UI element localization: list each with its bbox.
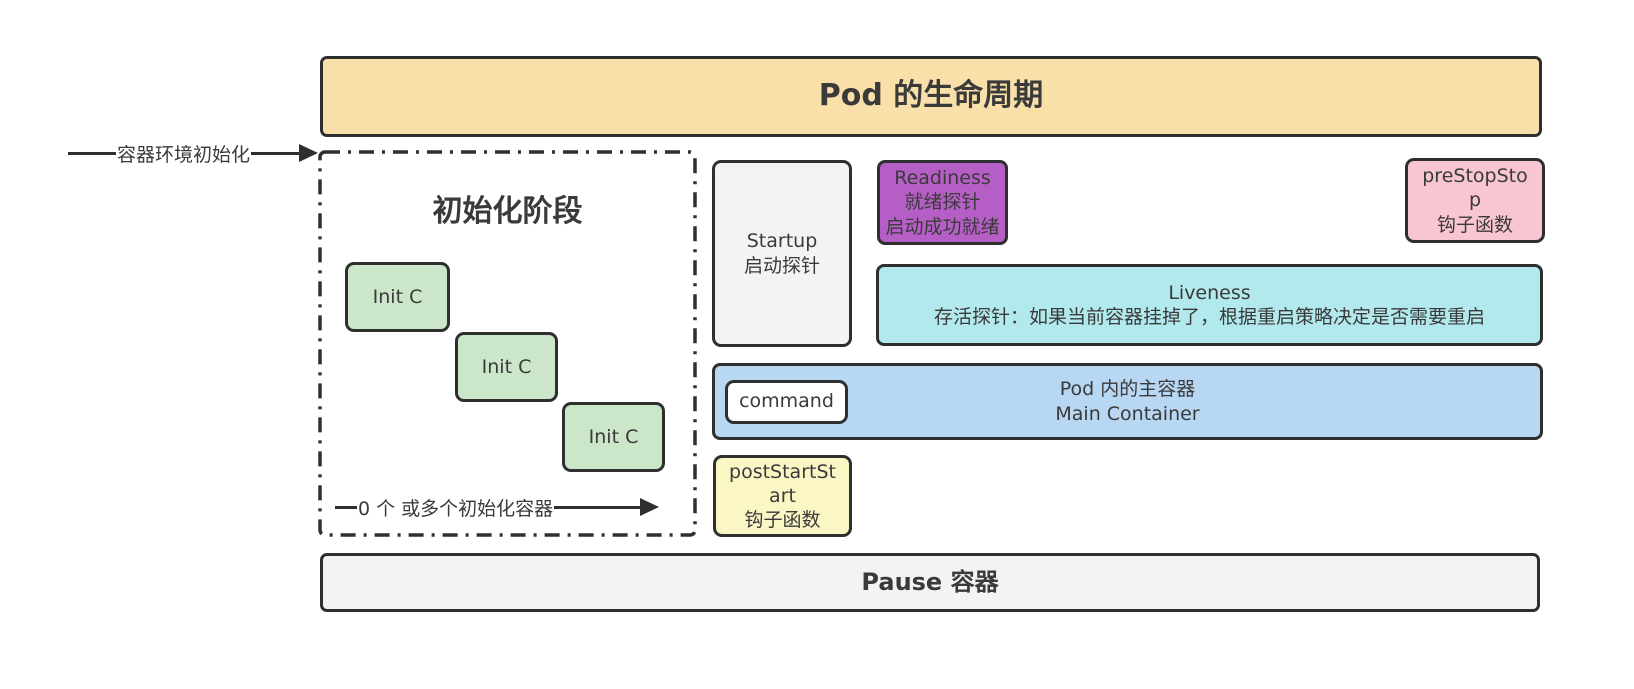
- startup-probe-name: Startup: [747, 229, 818, 253]
- readiness-probe-desc: 就绪探针: [904, 190, 980, 214]
- arrowhead-icon: [640, 498, 659, 516]
- init-phase-heading: 初始化阶段: [318, 186, 697, 230]
- arrow-line: [251, 152, 299, 155]
- pod-lifecycle-diagram: Pod 的生命周期 容器环境初始化 初始化阶段 Init C Init C In…: [0, 0, 1634, 689]
- poststart-hook-desc: 钩子函数: [744, 508, 820, 532]
- init-container-label: Init C: [482, 355, 532, 379]
- init-container-1: Init C: [345, 262, 450, 332]
- prestop-hook-name: preStopStop: [1419, 164, 1531, 213]
- env-init-arrow: 容器环境初始化: [68, 139, 318, 167]
- poststart-hook-name: postStartStart: [727, 460, 839, 509]
- command-chip: command: [725, 380, 848, 424]
- prestop-hook-desc: 钩子函数: [1437, 213, 1513, 237]
- init-container-label: Init C: [373, 285, 423, 309]
- pause-container-label: Pause 容器: [861, 567, 998, 598]
- startup-probe-desc: 启动探针: [744, 254, 820, 278]
- readiness-probe-box: Readiness 就绪探针 启动成功就绪: [877, 160, 1008, 245]
- init-count-arrow: 0 个 或多个初始化容器: [335, 492, 659, 522]
- env-init-arrow-label: 容器环境初始化: [116, 140, 251, 167]
- arrow-line: [335, 506, 357, 509]
- arrow-line: [554, 506, 640, 509]
- arrowhead-icon: [299, 144, 318, 162]
- diagram-title-label: Pod 的生命周期: [819, 77, 1044, 115]
- main-container-title-zh: Pod 内的主容器: [1060, 377, 1196, 401]
- liveness-probe-name: Liveness: [1168, 281, 1250, 305]
- liveness-probe-box: Liveness 存活探针：如果当前容器挂掉了，根据重启策略决定是否需要重启: [876, 264, 1543, 346]
- init-container-2: Init C: [455, 332, 558, 402]
- main-container-title-en: Main Container: [1055, 402, 1199, 426]
- readiness-probe-name: Readiness: [894, 166, 991, 190]
- main-container-box: command Pod 内的主容器 Main Container: [712, 363, 1543, 440]
- diagram-title: Pod 的生命周期: [320, 56, 1542, 137]
- prestop-hook-box: preStopStop 钩子函数: [1405, 158, 1545, 243]
- init-container-label: Init C: [589, 425, 639, 449]
- startup-probe-box: Startup 启动探针: [712, 160, 852, 347]
- arrow-line: [68, 152, 116, 155]
- poststart-hook-box: postStartStart 钩子函数: [713, 455, 852, 537]
- liveness-probe-desc: 存活探针：如果当前容器挂掉了，根据重启策略决定是否需要重启: [934, 305, 1485, 329]
- command-chip-label: command: [739, 389, 834, 413]
- pause-container-box: Pause 容器: [320, 553, 1540, 612]
- init-container-3: Init C: [562, 402, 665, 472]
- init-count-arrow-label: 0 个 或多个初始化容器: [357, 494, 554, 521]
- readiness-probe-note: 启动成功就绪: [885, 215, 999, 239]
